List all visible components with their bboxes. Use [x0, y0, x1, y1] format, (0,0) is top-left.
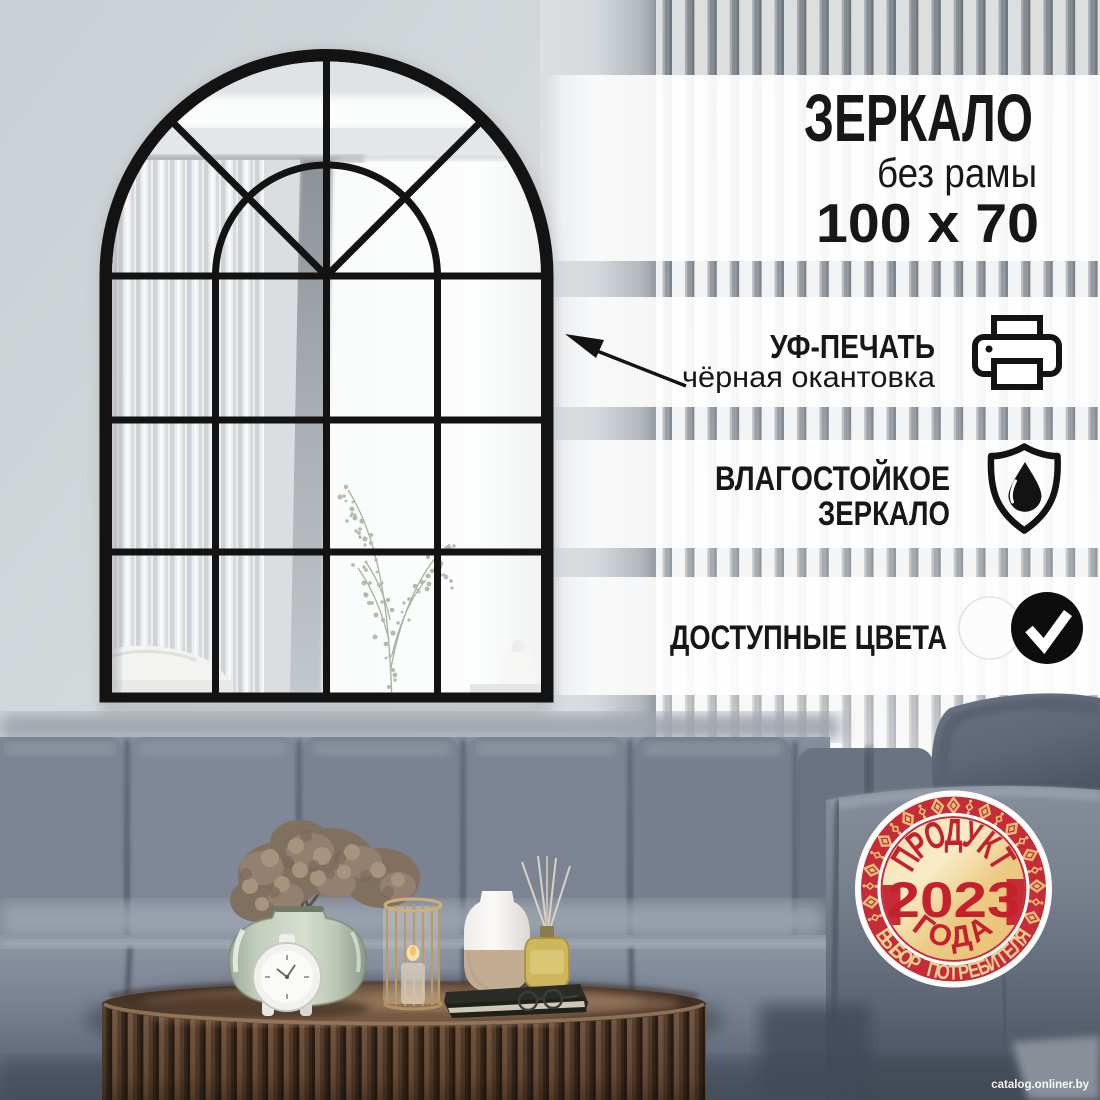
- svg-text:catalog.onliner.by: catalog.onliner.by: [991, 1079, 1089, 1091]
- svg-text:без рамы: без рамы: [877, 150, 1037, 196]
- svg-text:ВЛАГОСТОЙКОЕ: ВЛАГОСТОЙКОЕ: [715, 459, 950, 498]
- svg-text:ЗЕРКАЛО: ЗЕРКАЛО: [804, 81, 1033, 156]
- svg-text:ЗЕРКАЛО: ЗЕРКАЛО: [818, 495, 950, 533]
- svg-text:чёрная окантовка: чёрная окантовка: [682, 361, 935, 394]
- svg-text:ДОСТУПНЫЕ ЦВЕТА: ДОСТУПНЫЕ ЦВЕТА: [670, 619, 947, 657]
- svg-text:2023: 2023: [887, 872, 1021, 928]
- svg-text:100 x 70: 100 x 70: [816, 192, 1039, 254]
- svg-text:УФ-ПЕЧАТЬ: УФ-ПЕЧАТЬ: [770, 328, 935, 365]
